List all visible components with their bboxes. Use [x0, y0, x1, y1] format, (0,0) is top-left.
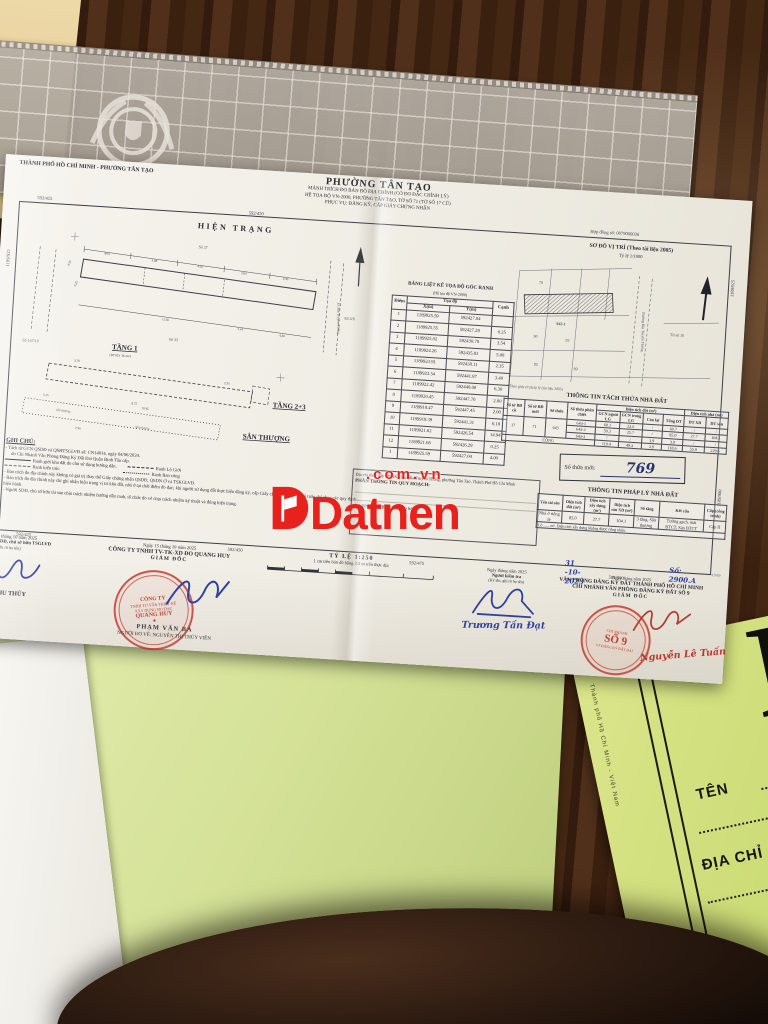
neighbor-parcel: 89: [573, 366, 577, 371]
folder-address-label: ĐỊA CHỈ: [700, 844, 764, 874]
dim-label: 4.88: [151, 258, 157, 263]
neighbor-parcel: 95: [534, 362, 538, 367]
dim-label: 10.45: [141, 406, 149, 411]
checker-signature-icon: [468, 581, 542, 621]
registry-doc-suffix: /CN59: [711, 573, 721, 578]
coord-table: ĐiểmTọa độCạnh X(m)Y(m) 11189925.5959242…: [382, 295, 515, 467]
road-label: Đ. Bia Truyền Thống: [336, 303, 340, 334]
parcel-label: 643-1: [556, 321, 566, 327]
dim-label: 4.50: [66, 259, 72, 266]
grid-tick: 1189/925: [729, 280, 735, 297]
dim-label: 3.44: [237, 327, 243, 332]
watermark-brand-row: Datnen: [268, 483, 503, 533]
neighbor-parcel: 93: [565, 337, 569, 342]
legend-dot-line: [124, 472, 150, 475]
folder-name-label: TÊN: [695, 780, 731, 803]
new-parcel-label: Số thửa mới:: [564, 464, 595, 471]
sheet-label: Tờ số 16: [670, 332, 684, 338]
legend-dash-line: [4, 465, 30, 468]
dim-label: 4.58: [279, 334, 285, 339]
legend-solid-line: [5, 459, 31, 462]
new-parcel-value: 769: [600, 460, 680, 479]
stamp-line: CHI NHÁNH: [606, 629, 628, 636]
dim-label: 12.60: [162, 317, 170, 322]
house-number-label: Số 33: [169, 337, 179, 343]
owner-name: THỊ THU THỦY: [0, 588, 80, 601]
watermark-suffix: .com.vn: [366, 466, 503, 483]
stamp-line: VP ĐĂNG KÝ ĐẤT ĐAI: [596, 643, 633, 653]
watermark-brand: Datnen: [310, 494, 460, 533]
floor-plan-drawing: 4.04 4.88 4.02 3.80 4.40 12.60 3.44 4.58…: [15, 222, 377, 452]
grid-tick: 592/450: [249, 210, 264, 216]
watermark: .com.vn Datnen: [268, 466, 503, 533]
grid-tick: 592/425: [37, 195, 52, 201]
dim-label: 2.95: [224, 381, 230, 385]
owner-signature-icon: [0, 548, 49, 590]
registry-signature-icon: [629, 598, 695, 642]
grid-tick: 1189/925: [5, 249, 11, 266]
san-thuong-inner-label: sân thượng: [56, 408, 71, 414]
dim-label: 7.90: [75, 426, 81, 431]
road-label: Đường Bia Truyền Thống: [640, 312, 645, 352]
legend-dashdot-line: [128, 467, 154, 470]
location-sketch-drawing: 643-1 78 90 93 95 89 Tờ số 16 Đường Bia …: [505, 254, 726, 393]
dim-label: 3.15: [43, 393, 49, 397]
watermark-logo-icon: [268, 483, 310, 533]
tang1-label: TẦNG 1: [112, 343, 138, 353]
registry-signer-name: Nguyễn Lê Tuấn: [640, 646, 727, 664]
dim-label: 3.80: [241, 271, 247, 276]
contract-number: Hợp đồng số: 0079000036: [590, 229, 639, 237]
photo-scene: Thành phố Hồ Chí Minh - Việt Nam H TÊN Đ…: [0, 0, 768, 1024]
dim-label: 0.25: [73, 280, 79, 287]
tang1-note: (DTXD: 36.1m²): [109, 353, 131, 358]
house-number-label: Số 147/10: [22, 337, 39, 343]
neighbor-parcel: 78: [539, 280, 543, 285]
survey-document: THÀNH PHỐ HỒ CHÍ MINH - PHƯỜNG TÂN TẠO P…: [0, 154, 753, 684]
checker-name: Trương Tấn Đạt: [447, 620, 559, 632]
dim-label: 8.75: [131, 401, 137, 405]
region-title: THÀNH PHỐ HỒ CHÍ MINH - PHƯỜNG TÂN TẠO: [19, 160, 153, 174]
house-number-label: Số 37: [198, 244, 208, 250]
new-parcel-box: Số thửa mới: 769: [559, 454, 686, 485]
san-thuong-label: SÂN THƯỢNG: [242, 432, 290, 443]
folder-letter: H: [739, 589, 768, 739]
house-number-label: Số 3/8: [344, 316, 355, 322]
dim-label: 4.04: [104, 251, 110, 256]
dim-label: 4.40: [283, 277, 289, 282]
owner-signature-block: Ngày 15 tháng 10 năm 2025 Người SDĐ, chủ…: [0, 533, 84, 601]
folder-name-line: [761, 756, 768, 790]
dim-label: 3.70: [74, 359, 80, 363]
neighbor-parcel: 90: [533, 333, 537, 338]
director-signature-icon: [162, 569, 235, 617]
dim-label: 4.02: [197, 264, 203, 269]
tang23-label: TẦNG 2+3: [272, 401, 306, 411]
stamp-line: SỐ 9: [603, 632, 628, 648]
